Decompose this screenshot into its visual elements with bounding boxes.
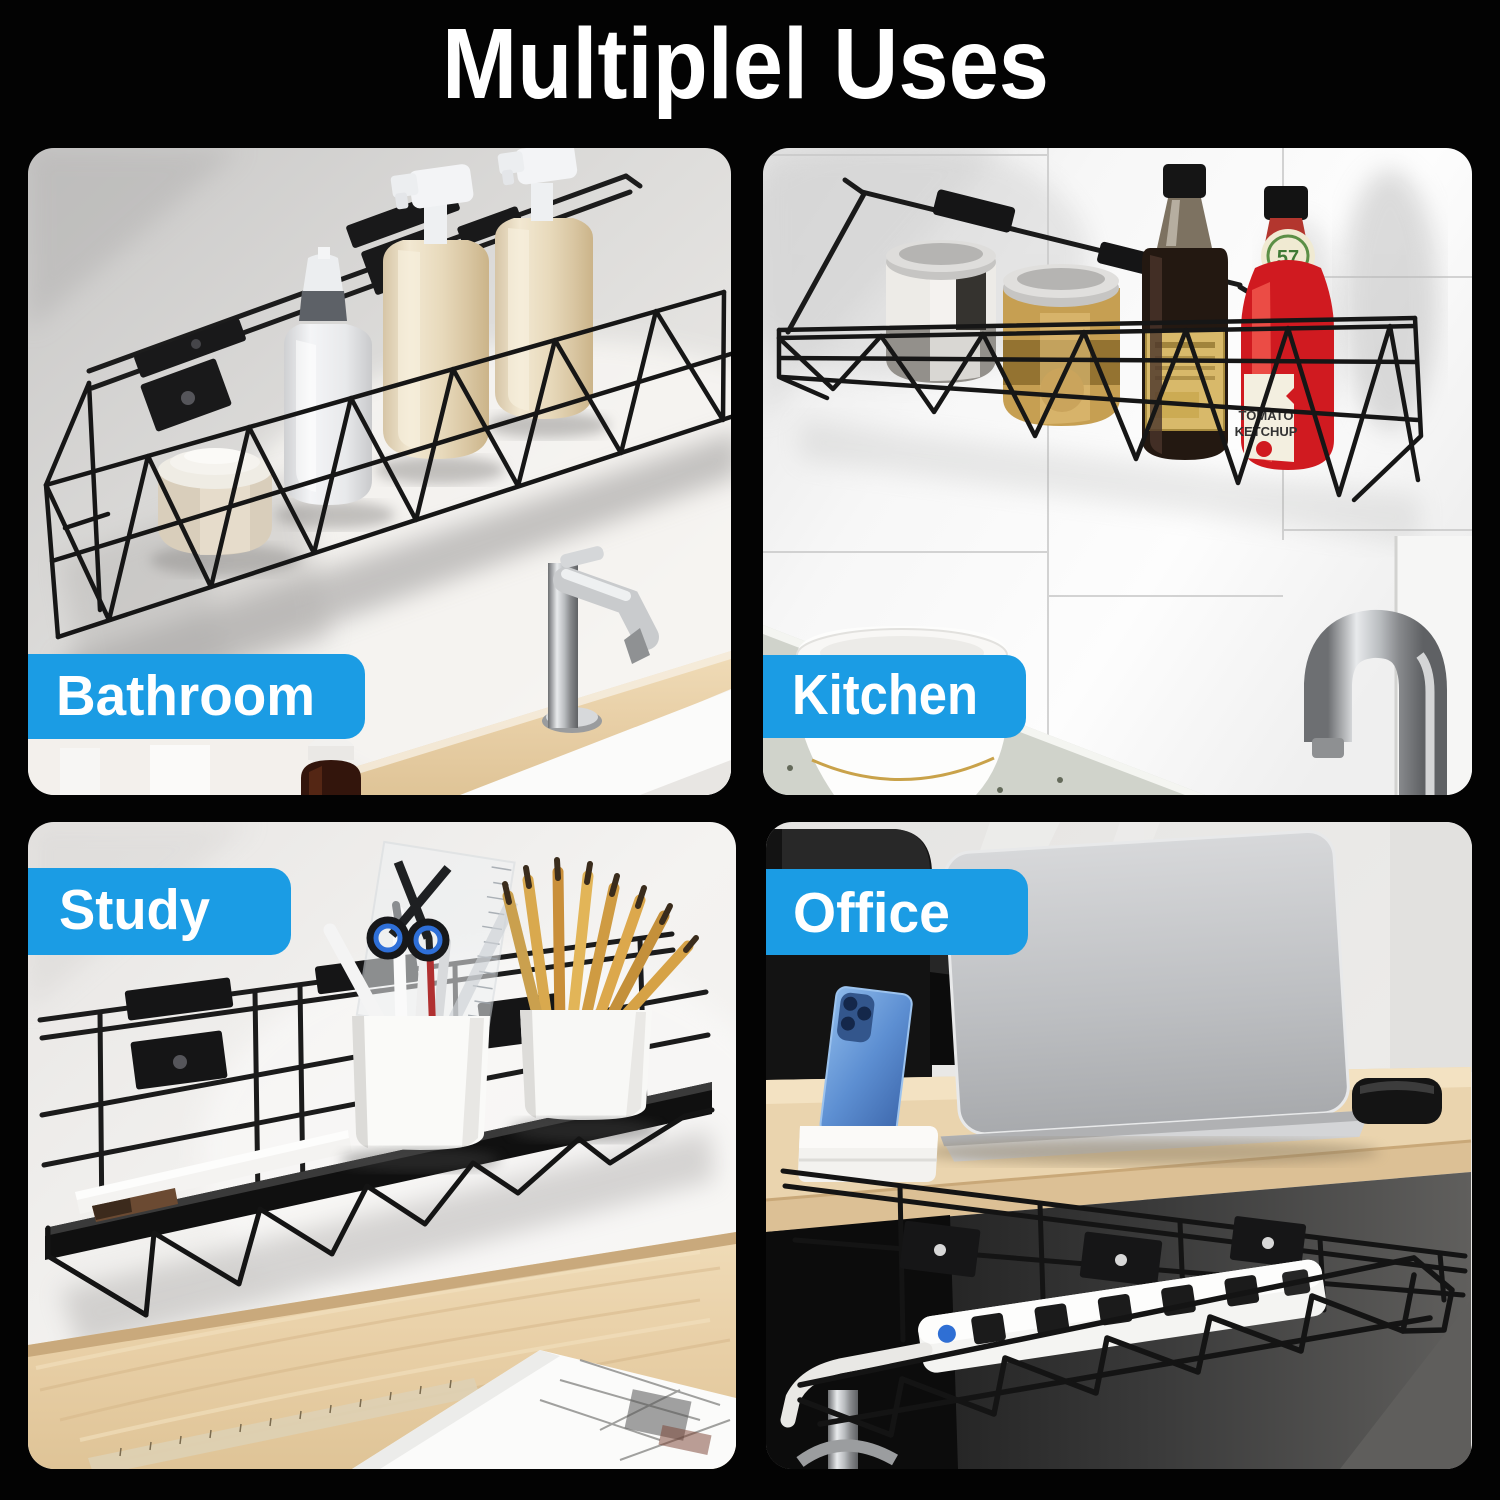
- svg-text:Bathroom: Bathroom: [56, 664, 315, 728]
- svg-text:Study: Study: [59, 878, 210, 942]
- svg-text:KETCHUP: KETCHUP: [1235, 424, 1298, 439]
- svg-text:Kitchen: Kitchen: [792, 663, 978, 727]
- svg-text:Multiplel Uses: Multiplel Uses: [442, 8, 1049, 120]
- svg-text:Office: Office: [793, 881, 950, 945]
